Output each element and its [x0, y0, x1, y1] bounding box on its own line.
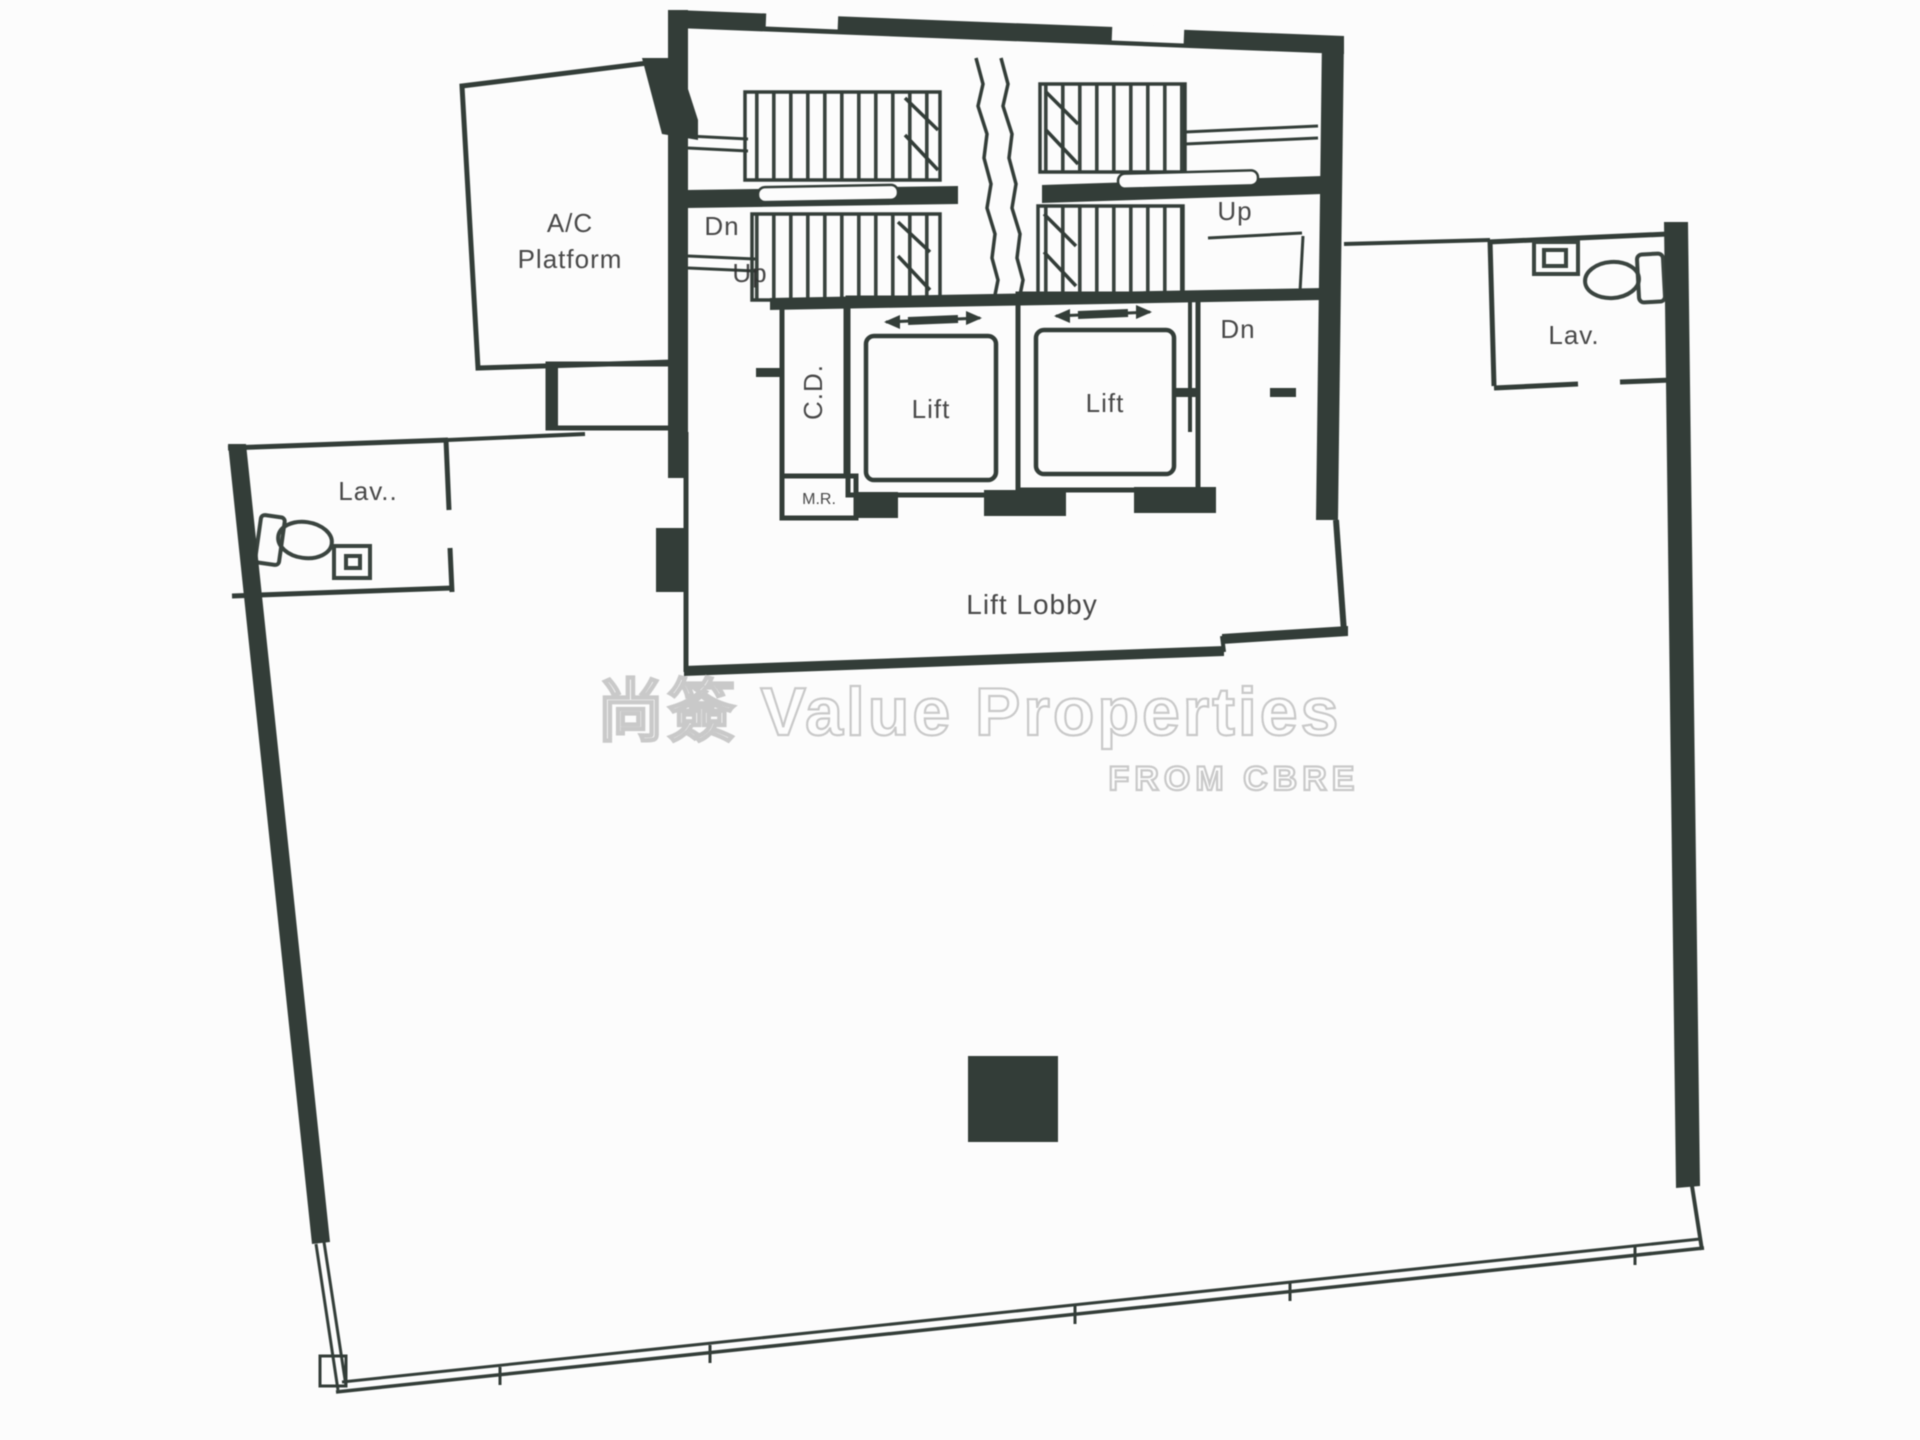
- landing-opening: [1118, 170, 1258, 189]
- watermark-text: 尚簽 Value Properties: [597, 674, 1342, 750]
- outer-walls: [228, 222, 1704, 1392]
- meter-room-label: M.R.: [802, 491, 836, 508]
- right-wall: [1664, 222, 1700, 1188]
- stair-label-down-left: Dn: [704, 211, 739, 241]
- stair-flight-lower-left: [752, 214, 940, 300]
- top-wall-opening: [766, 11, 839, 30]
- wall-stub: [756, 368, 782, 377]
- lavatory-right-label: Lav.: [1548, 320, 1599, 350]
- stair-flight-lower-right: [1038, 206, 1183, 294]
- lift-threshold: [984, 490, 1066, 516]
- toilet: [1584, 253, 1665, 302]
- core-right-wall: [1316, 36, 1344, 520]
- lift-door-arrow: [884, 311, 982, 329]
- stair-break-lines: [976, 58, 1023, 300]
- floor-plan: Dn Up Up Dn A/C Platform C.D. M.R. Lift: [0, 0, 1920, 1440]
- meter-room: M.R.: [782, 476, 856, 518]
- wall-stub: [1270, 388, 1296, 397]
- lobby-bottom-wall-step: [1222, 626, 1348, 644]
- stair-label-up-left: Up: [732, 258, 767, 288]
- stairwell: Dn Up Up Dn: [642, 10, 1344, 520]
- stair-flight-upper-right: [1040, 84, 1185, 172]
- lavatory-left: Lav..: [228, 434, 585, 596]
- ac-platform-label-2: Platform: [518, 244, 623, 274]
- lobby-bottom-wall: [684, 646, 1224, 676]
- bottom-window-wall: [336, 1248, 1704, 1392]
- top-wall-opening: [1112, 25, 1185, 44]
- lift-threshold: [1134, 487, 1216, 513]
- landing-opening: [758, 185, 898, 202]
- column: [968, 1056, 1058, 1142]
- lift-2: Lift: [1018, 294, 1198, 490]
- toilet: [255, 515, 334, 566]
- cable-duct-label: C.D.: [798, 364, 828, 420]
- stair-label-up-right: Up: [1217, 196, 1252, 226]
- lavatory-left-label: Lav..: [338, 476, 397, 506]
- wall-stub: [656, 528, 684, 592]
- lift-1: Lift: [848, 298, 1018, 495]
- lift-door-arrow: [1054, 305, 1152, 323]
- vestibule: [548, 364, 676, 428]
- lavatory-right: Lav.: [1344, 234, 1672, 388]
- lift-lobby-label: Lift Lobby: [966, 589, 1097, 620]
- sink: [1534, 242, 1578, 274]
- sink: [334, 546, 370, 578]
- lift-1-label: Lift: [912, 394, 951, 424]
- lift-2-label: Lift: [1086, 388, 1125, 418]
- lift-threshold: [858, 492, 898, 518]
- lift-lobby: Lift Lobby: [656, 432, 1348, 676]
- ac-platform-room: A/C Platform: [462, 60, 672, 368]
- cable-duct-shaft: C.D.: [756, 306, 846, 476]
- watermark-subtext: FROM CBRE: [1109, 760, 1360, 798]
- watermark: 尚簽 Value Properties FROM CBRE: [597, 674, 1360, 798]
- ac-platform-label-1: A/C: [547, 208, 593, 238]
- stair-label-down-right: Dn: [1220, 314, 1255, 344]
